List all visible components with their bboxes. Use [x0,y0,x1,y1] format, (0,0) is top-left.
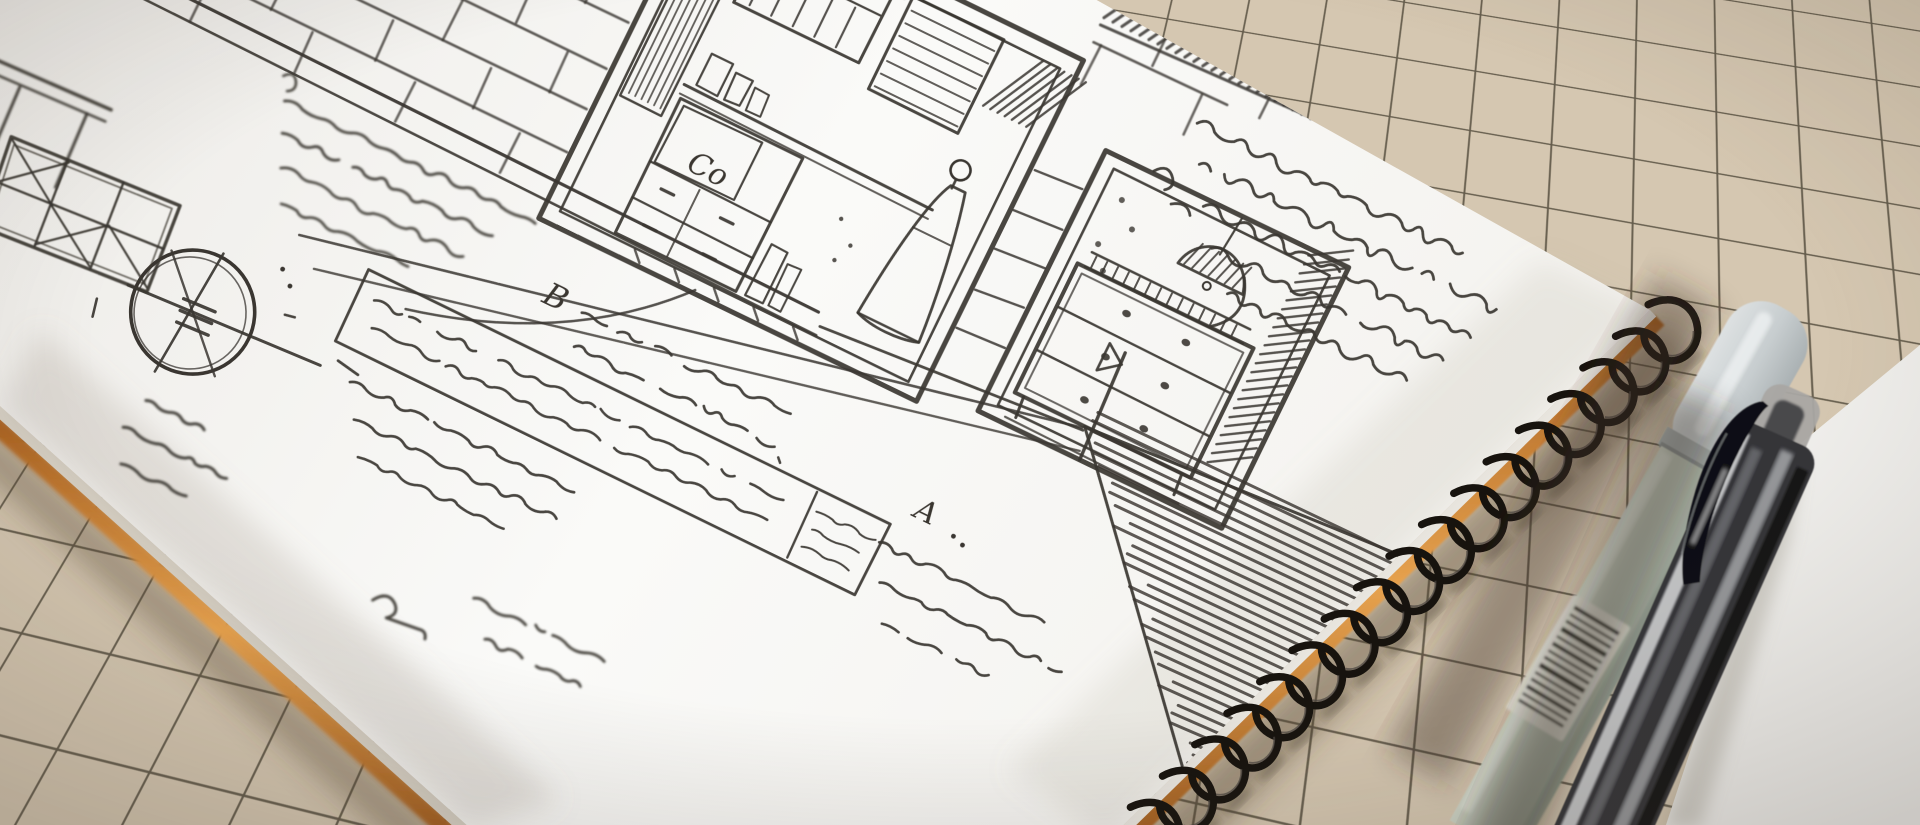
scene-root: Co B A [0,0,1920,825]
sketchbook-photo: Co B A [0,0,1920,825]
vignette-overlay [0,0,1920,825]
